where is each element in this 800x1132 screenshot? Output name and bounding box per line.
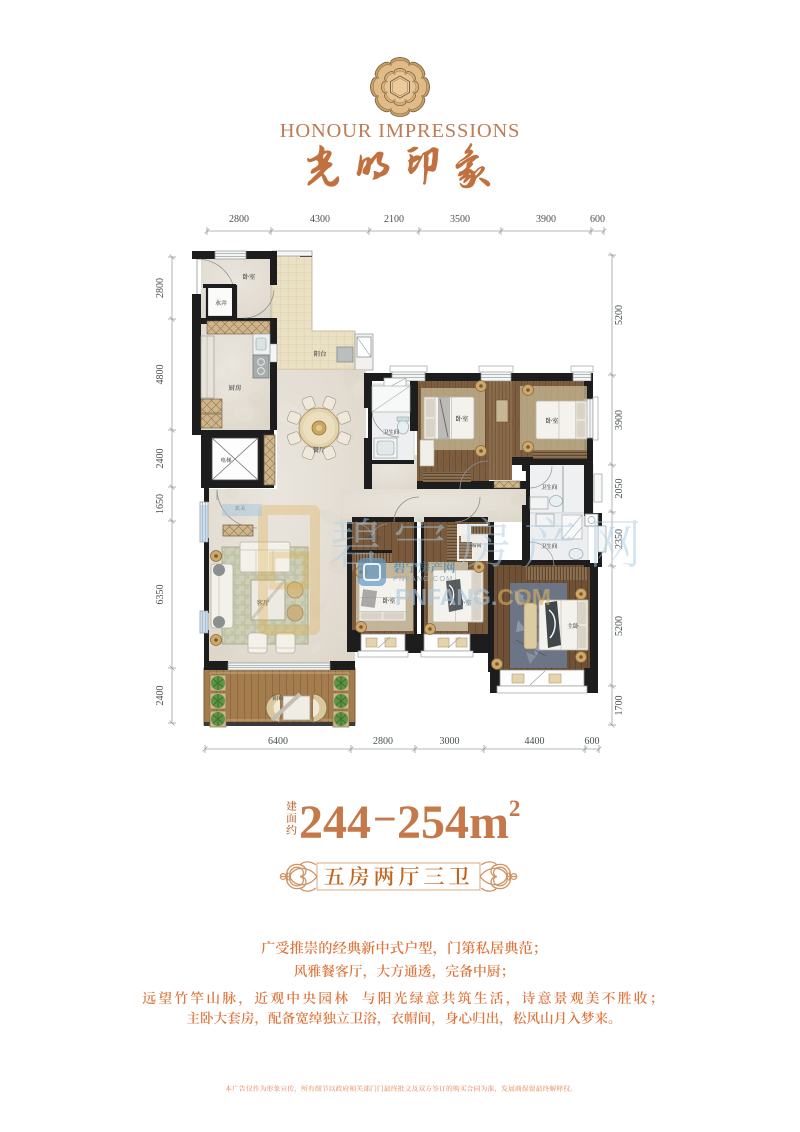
svg-text:3500: 3500 <box>450 214 470 225</box>
svg-text:4800: 4800 <box>155 365 166 385</box>
svg-text:2800: 2800 <box>373 736 393 747</box>
svg-text:2400: 2400 <box>155 686 166 706</box>
svg-text:6400: 6400 <box>268 736 288 747</box>
svg-text:3000: 3000 <box>440 736 460 747</box>
svg-text:4400: 4400 <box>525 736 545 747</box>
svg-text:2050: 2050 <box>614 479 625 499</box>
svg-text:4300: 4300 <box>310 214 330 225</box>
svg-text:1700: 1700 <box>614 696 625 716</box>
svg-text:6350: 6350 <box>155 585 166 605</box>
svg-text:HONOUR IMPRESSIONS: HONOUR IMPRESSIONS <box>280 120 521 142</box>
svg-text:2400: 2400 <box>155 449 166 469</box>
svg-text:1650: 1650 <box>155 494 166 514</box>
svg-text:244−254m2: 244−254m2 <box>299 796 520 849</box>
svg-text:PNFANG.COM: PNFANG.COM <box>395 584 551 610</box>
svg-text:2800: 2800 <box>155 278 166 298</box>
svg-text:600: 600 <box>585 736 600 747</box>
svg-text:2100: 2100 <box>384 214 404 225</box>
svg-text:5200: 5200 <box>614 305 625 325</box>
svg-text:2800: 2800 <box>229 214 249 225</box>
svg-text:5200: 5200 <box>614 616 625 636</box>
svg-text:3900: 3900 <box>536 214 556 225</box>
svg-text:3900: 3900 <box>614 410 625 430</box>
svg-text:600: 600 <box>590 214 605 225</box>
svg-text:PNFANG.COM: PNFANG.COM <box>393 574 453 583</box>
